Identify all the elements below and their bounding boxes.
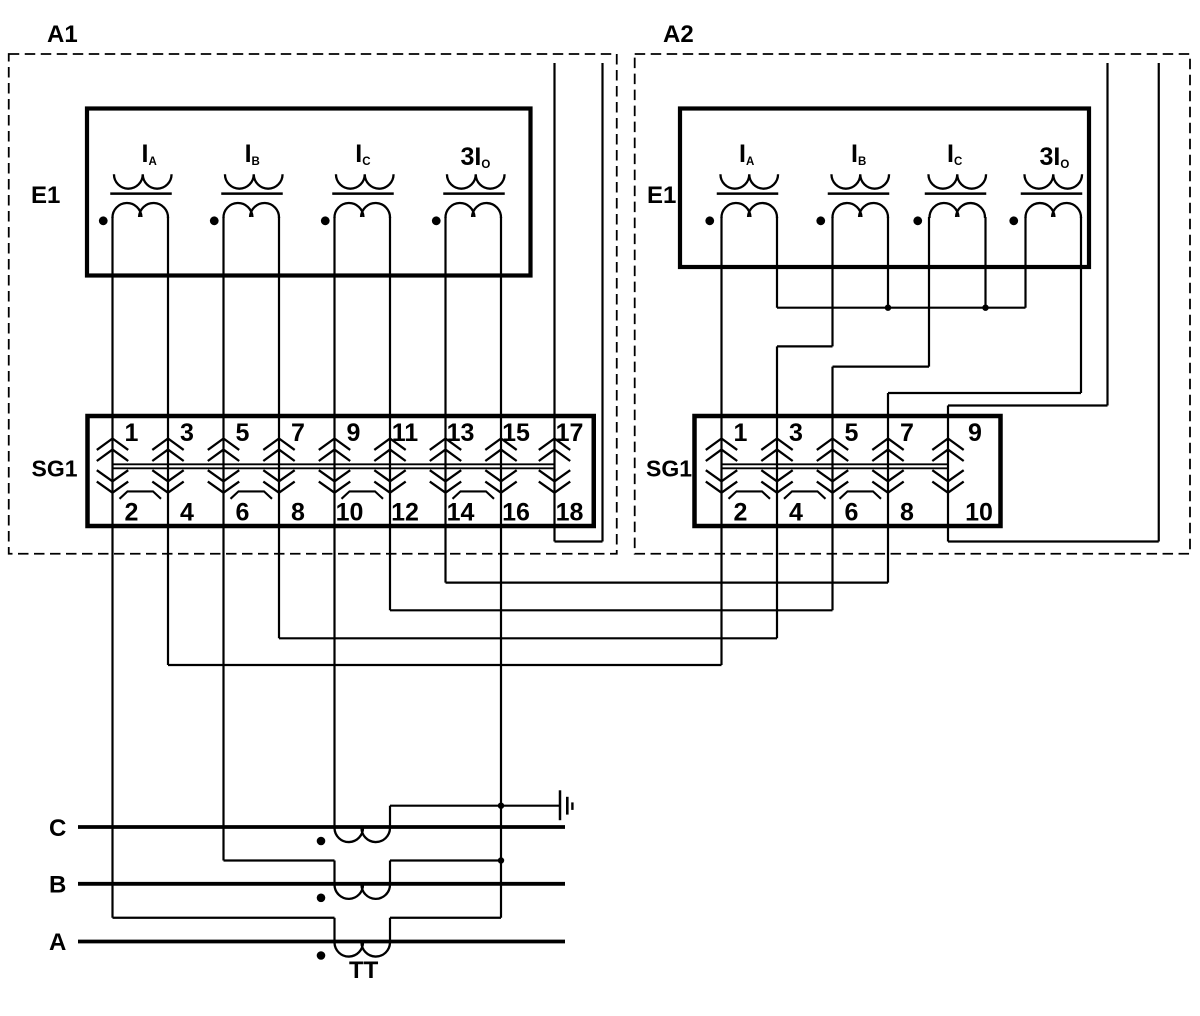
svg-text:B: B: [49, 871, 66, 898]
svg-text:A1: A1: [47, 21, 78, 48]
svg-text:SG1: SG1: [32, 456, 78, 482]
svg-text:SG1: SG1: [646, 456, 692, 482]
svg-text:6: 6: [236, 499, 250, 527]
svg-text:18: 18: [556, 499, 584, 527]
svg-text:17: 17: [556, 419, 584, 447]
svg-text:8: 8: [291, 499, 305, 527]
svg-text:4: 4: [180, 499, 194, 527]
svg-text:TT: TT: [349, 957, 379, 984]
svg-text:A2: A2: [663, 21, 694, 48]
svg-text:14: 14: [447, 499, 475, 527]
svg-text:16: 16: [502, 499, 530, 527]
svg-text:5: 5: [236, 419, 250, 447]
svg-text:C: C: [49, 815, 66, 842]
svg-text:A: A: [49, 929, 66, 956]
svg-text:15: 15: [502, 419, 530, 447]
svg-text:1: 1: [125, 419, 139, 447]
svg-text:13: 13: [447, 419, 475, 447]
svg-text:12: 12: [391, 499, 419, 527]
svg-text:10: 10: [965, 499, 993, 527]
svg-text:9: 9: [347, 419, 361, 447]
svg-text:E1: E1: [647, 182, 676, 209]
svg-text:2: 2: [125, 499, 139, 527]
svg-text:E1: E1: [31, 182, 60, 209]
svg-text:4: 4: [789, 499, 803, 527]
svg-text:10: 10: [336, 499, 364, 527]
svg-text:7: 7: [291, 419, 305, 447]
svg-text:3: 3: [789, 419, 803, 447]
svg-text:9: 9: [968, 419, 982, 447]
svg-text:1: 1: [734, 419, 748, 447]
svg-text:11: 11: [392, 419, 419, 447]
svg-text:5: 5: [845, 419, 859, 447]
svg-text:7: 7: [900, 419, 914, 447]
svg-text:6: 6: [845, 499, 859, 527]
svg-text:2: 2: [734, 499, 748, 527]
svg-text:8: 8: [900, 499, 914, 527]
svg-text:3: 3: [180, 419, 194, 447]
